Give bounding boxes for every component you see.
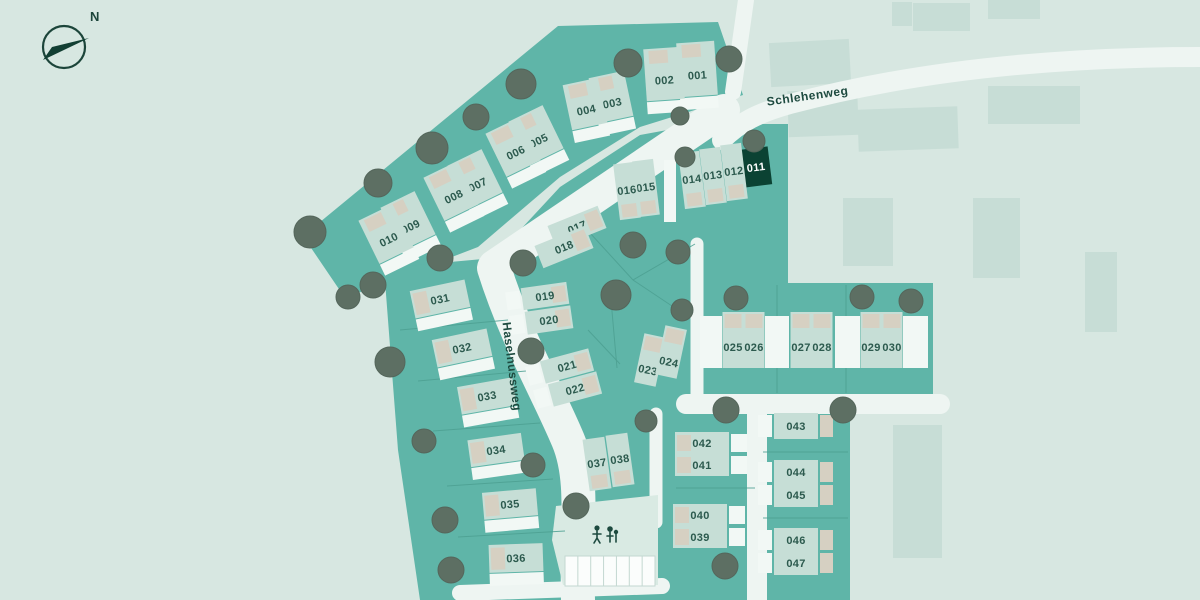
plot-number-label: 042 <box>692 438 711 450</box>
site-plan-map: 0010020030040050060070080090100110120130… <box>0 0 1200 600</box>
plot-number-label: 029 <box>861 342 880 354</box>
parking-stall-row <box>565 556 655 586</box>
parking-stalls <box>565 556 655 586</box>
roof-area <box>814 314 831 328</box>
roof-area <box>648 50 668 64</box>
plot-029[interactable]: 029 <box>861 312 882 368</box>
tree-icon <box>336 285 360 309</box>
plot-040[interactable]: 040 <box>673 504 745 526</box>
terrace <box>758 415 772 437</box>
tree-icon <box>713 397 739 423</box>
plot-number-label: 014 <box>682 173 703 187</box>
terrace <box>731 456 747 474</box>
existing-building <box>769 39 851 87</box>
existing-building <box>913 3 970 31</box>
existing-building <box>988 0 1040 19</box>
roof-area <box>820 530 833 550</box>
terrace <box>729 506 745 524</box>
plot-number-label: 046 <box>786 535 805 547</box>
roof-area <box>484 494 500 516</box>
tree-icon <box>432 507 458 533</box>
roof-area <box>746 314 763 328</box>
compass-icon: N <box>43 9 99 68</box>
roof-area <box>793 314 810 328</box>
tree-icon <box>463 104 489 130</box>
roof-area <box>707 188 723 203</box>
terrace <box>758 553 772 573</box>
plot-number-label: 041 <box>692 460 711 472</box>
roof-area <box>820 485 833 505</box>
tree-icon <box>850 285 874 309</box>
tree-icon <box>438 557 464 583</box>
roof-area <box>681 44 701 58</box>
tree-icon <box>712 553 738 579</box>
plot-number-label: 035 <box>500 498 520 512</box>
existing-building <box>988 86 1080 124</box>
plot-number-label: 030 <box>882 342 901 354</box>
plot-047[interactable]: 047 <box>758 551 833 575</box>
roof-area <box>820 553 833 573</box>
plot-number-label: 028 <box>812 342 831 354</box>
plot-number-label: 044 <box>786 467 806 479</box>
tree-icon <box>635 410 657 432</box>
plot-028[interactable]: 028 <box>812 312 833 368</box>
terrace <box>731 434 747 452</box>
tree-icon <box>427 245 453 271</box>
roof-area <box>614 470 632 485</box>
tree-icon <box>521 453 545 477</box>
terrace <box>758 530 772 550</box>
roof-area <box>591 474 609 489</box>
terrace <box>765 316 789 368</box>
tree-icon <box>360 272 386 298</box>
plot-026[interactable]: 026 <box>744 312 765 368</box>
plot-030[interactable]: 030 <box>882 312 903 368</box>
tree-icon <box>294 216 326 248</box>
plot-number-label: 016 <box>617 184 638 198</box>
tree-icon <box>671 107 689 125</box>
tree-icon <box>601 280 631 310</box>
tree-icon <box>899 289 923 313</box>
roof-area <box>884 314 901 328</box>
tree-icon <box>518 338 544 364</box>
plot-042[interactable]: 042 <box>675 432 747 454</box>
roof-area <box>677 435 691 451</box>
plot-041[interactable]: 041 <box>675 454 747 476</box>
tree-icon <box>671 299 693 321</box>
plot-number-label: 026 <box>744 342 763 354</box>
plot-number-label: 027 <box>791 342 810 354</box>
plot-number-label: 047 <box>786 558 805 570</box>
terrace <box>903 316 928 368</box>
tree-icon <box>620 232 646 258</box>
terrace <box>505 291 521 311</box>
road <box>460 586 662 593</box>
plot-number-label: 011 <box>746 161 766 175</box>
plot-number-label: 040 <box>690 510 709 522</box>
plot-039[interactable]: 039 <box>673 526 745 548</box>
roof-area <box>470 441 487 464</box>
plot-034[interactable]: 034 <box>467 433 526 480</box>
roof-area <box>640 200 656 215</box>
terrace <box>490 572 544 586</box>
terrace <box>835 316 860 368</box>
plot-025[interactable]: 025 <box>723 312 744 368</box>
plot-027[interactable]: 027 <box>791 312 812 368</box>
roof-area <box>677 457 691 473</box>
tree-icon <box>510 250 536 276</box>
existing-building <box>843 198 893 266</box>
plot-number-label: 039 <box>690 532 709 544</box>
tree-icon <box>743 130 765 152</box>
tree-icon <box>666 240 690 264</box>
terrace <box>729 528 745 546</box>
terrace <box>758 462 772 482</box>
site-plan: 0010020030040050060070080090100110120130… <box>0 0 1200 600</box>
tree-icon <box>412 429 436 453</box>
plot-number-label: 015 <box>636 181 657 195</box>
terrace <box>700 316 722 368</box>
roof-area <box>675 529 689 545</box>
plot-number-label: 012 <box>724 165 745 179</box>
plot-number-label: 002 <box>654 74 674 87</box>
plot-002[interactable]: 002 <box>643 47 685 114</box>
plot-046[interactable]: 046 <box>758 528 833 552</box>
tree-icon <box>830 397 856 423</box>
terrace <box>758 485 772 505</box>
existing-building <box>1085 252 1117 332</box>
existing-building <box>857 106 958 151</box>
existing-building <box>893 425 942 558</box>
plot-036[interactable]: 036 <box>489 543 544 586</box>
roof-area <box>675 507 689 523</box>
tree-icon <box>675 147 695 167</box>
tree-icon <box>364 169 392 197</box>
roof-area <box>725 314 742 328</box>
plot-number-label: 036 <box>506 553 526 566</box>
plot-035[interactable]: 035 <box>482 488 539 533</box>
roof-area <box>621 203 637 218</box>
roof-area <box>686 192 702 207</box>
tree-icon <box>563 493 589 519</box>
plot-043[interactable]: 043 <box>758 413 833 439</box>
roof-area <box>820 462 833 482</box>
tree-icon <box>614 49 642 77</box>
roof-area <box>728 184 744 199</box>
compass-north-label: N <box>90 9 99 24</box>
plot-045[interactable]: 045 <box>758 483 833 507</box>
tree-icon <box>716 46 742 72</box>
roof-area <box>491 547 506 569</box>
existing-building <box>892 2 912 26</box>
terrace <box>664 160 676 222</box>
plot-number-label: 013 <box>703 169 724 183</box>
roof-area <box>863 314 880 328</box>
tree-icon <box>724 286 748 310</box>
tree-icon <box>506 69 536 99</box>
existing-building <box>973 198 1020 278</box>
plot-044[interactable]: 044 <box>758 460 833 484</box>
road <box>733 0 746 92</box>
plot-number-label: 045 <box>786 490 805 502</box>
plot-number-label: 043 <box>786 421 805 433</box>
plot-number-label: 001 <box>687 69 707 82</box>
tree-icon <box>375 347 405 377</box>
tree-icon <box>416 132 448 164</box>
roof-area <box>820 415 833 437</box>
plot-number-label: 025 <box>723 342 742 354</box>
